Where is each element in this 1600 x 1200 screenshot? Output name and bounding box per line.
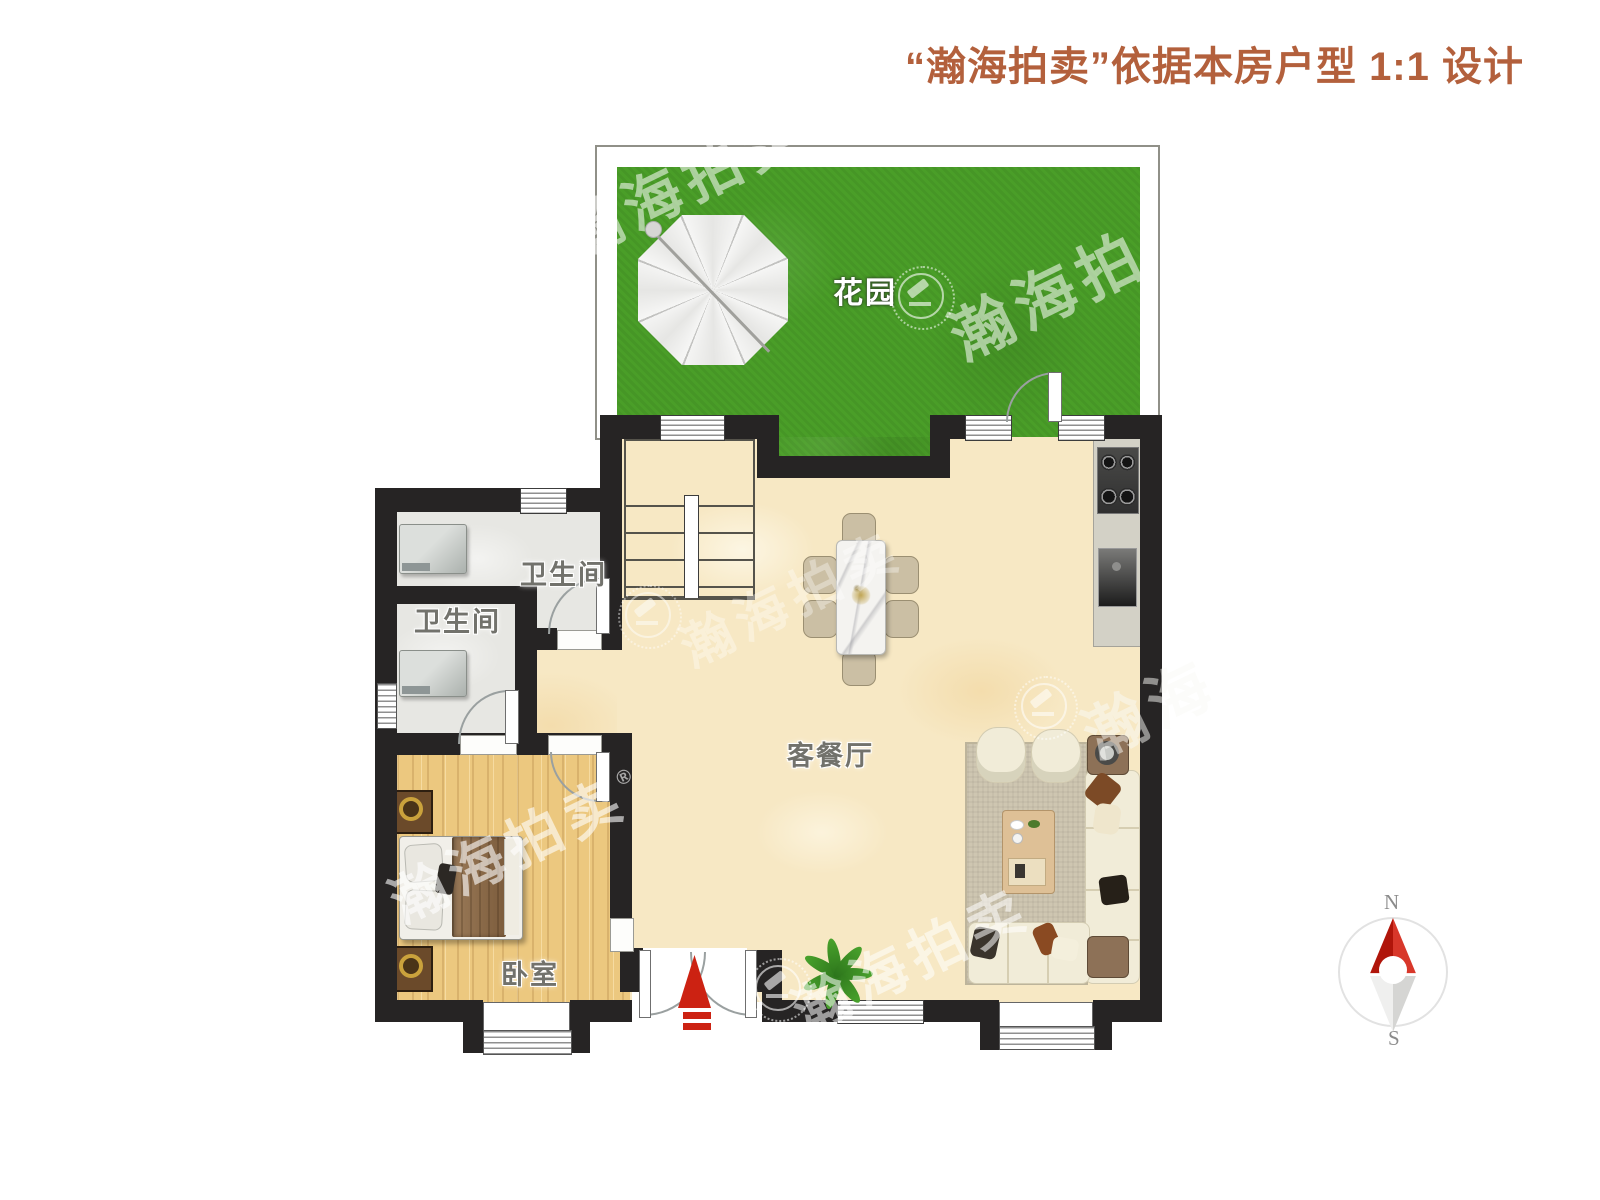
stair-edge [622, 598, 755, 600]
sofa-pillow-black [1098, 874, 1130, 906]
entry-door-panel-right [745, 950, 757, 1018]
bed-sheet-fold [504, 839, 519, 935]
window-garden-left [965, 415, 1012, 441]
wall-right [1140, 437, 1162, 1022]
bath-lower-label: 卫生间 [414, 600, 501, 639]
wall [757, 415, 779, 478]
wall-left [375, 488, 397, 1022]
bed-blanket [452, 837, 506, 937]
wall [779, 456, 930, 478]
coffee-table-plate [1010, 820, 1024, 830]
wall [375, 1000, 465, 1022]
dining-chair [803, 600, 838, 638]
sofa-pillow-cream [1092, 802, 1122, 835]
side-table [1087, 936, 1129, 978]
stair-tread [626, 505, 684, 507]
dining-chair [842, 650, 876, 686]
entry-arrow-bar [683, 1023, 711, 1030]
floor-plan-page: “瀚海拍卖”依据本房户型 1:1 设计 花园 [0, 0, 1600, 1200]
bed-pillow [404, 889, 444, 931]
vanity-faucet [402, 686, 430, 694]
wall-bedroom-right [610, 733, 632, 918]
window-stairs-top [660, 415, 725, 441]
wall [570, 1000, 590, 1053]
vanity-faucet [402, 563, 430, 571]
stair-tread [699, 586, 753, 588]
dining-chair [884, 556, 919, 594]
window-living-bottom [837, 1000, 924, 1024]
coffee-table-cup [1012, 833, 1023, 844]
stair-tread [626, 559, 684, 561]
bay-window-living-glass [999, 1026, 1095, 1050]
dining-table [836, 540, 886, 655]
umbrella-ball [645, 221, 662, 238]
stove-icon [1097, 447, 1139, 514]
opening-bedroom-porch [610, 918, 634, 952]
door-panel-bedroom [596, 752, 610, 802]
wall [463, 1000, 483, 1053]
sink-drain [1112, 562, 1121, 571]
stair-tread [699, 505, 753, 507]
door-panel-bath-lower [505, 690, 519, 744]
nightstand-lamp-icon [399, 954, 423, 978]
armchair [1031, 729, 1081, 783]
compass-north-label: N [1384, 890, 1399, 915]
stair-tread [626, 586, 684, 588]
nightstand-lamp-icon [399, 797, 423, 821]
stair-tread [699, 559, 753, 561]
sofa-pillow-white [1050, 936, 1079, 962]
entry-arrow-bar [683, 1012, 711, 1019]
window-garden-right [1058, 415, 1105, 441]
door-panel-garden [1048, 372, 1062, 422]
window-bath-upper [520, 488, 567, 514]
entry-door-panel-left [639, 950, 651, 1018]
window-left-wall [377, 683, 397, 729]
tray-item [1015, 864, 1025, 878]
kitchen-sink-icon [1098, 548, 1137, 607]
wall [1093, 1000, 1112, 1050]
dining-chair [803, 556, 838, 594]
wall [980, 1000, 999, 1050]
garden-label: 花园 [833, 268, 897, 312]
stair-tread [699, 532, 753, 534]
wall [397, 488, 610, 512]
wall [922, 1000, 982, 1022]
wall [1101, 415, 1162, 439]
lamp-icon [1095, 741, 1119, 765]
compass-hub [1379, 956, 1407, 984]
coffee-table-sprig [1028, 820, 1040, 828]
plant-icon [813, 944, 861, 992]
bath-upper-label: 卫生间 [520, 553, 607, 592]
bay-window-bedroom-glass [483, 1030, 572, 1055]
garden-grass-extension [779, 437, 930, 457]
bedroom-label: 卧室 [501, 953, 559, 992]
living-dining-label: 客餐厅 [787, 734, 874, 773]
wall [930, 415, 950, 478]
coffee-table-tray [1008, 858, 1046, 886]
armchair [976, 727, 1026, 783]
wall [590, 1000, 632, 1022]
page-title: “瀚海拍卖”依据本房户型 1:1 设计 [905, 34, 1524, 92]
stair-divider [684, 495, 699, 600]
stair-tread [626, 532, 684, 534]
dining-chair [884, 600, 919, 638]
